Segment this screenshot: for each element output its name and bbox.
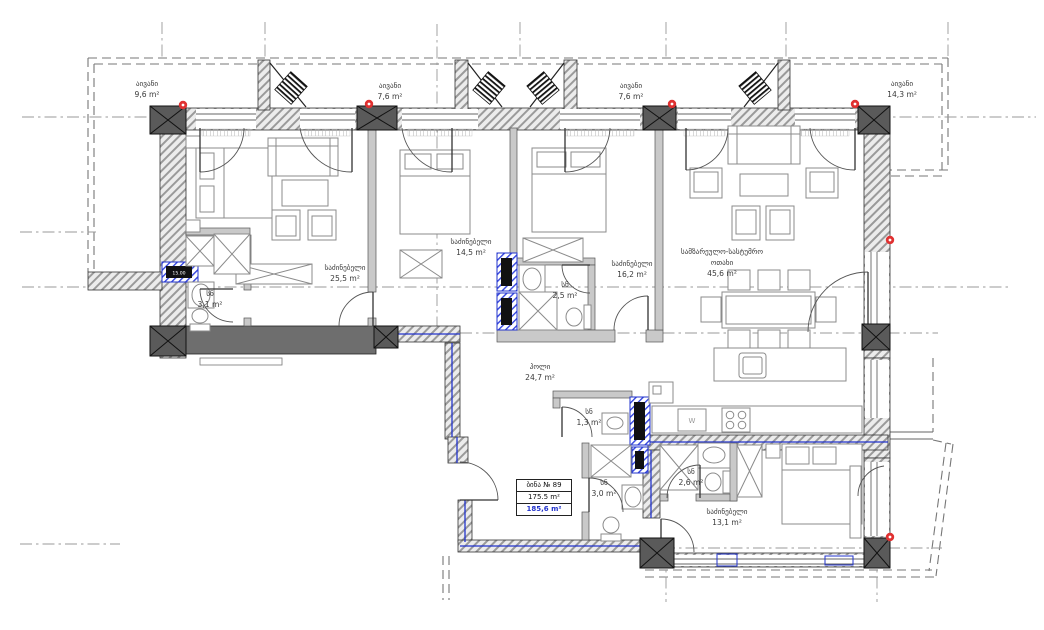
sink-bottom-right: [698, 443, 730, 468]
apartment-area-total: 185,6 m²: [517, 504, 571, 515]
room-label-bedroom-mid-right: საძინებელი16,2 m²: [611, 258, 652, 281]
room-label-bathroom-bottom: სნ3,0 m²: [592, 477, 617, 500]
armchair-3: [732, 206, 760, 240]
shower-mid: [519, 292, 557, 330]
apartment-area-living: 175.5 m²: [517, 492, 571, 504]
bed-mid-left: [400, 150, 470, 234]
room-label-bedroom-bottom: საძინებელი13,1 m²: [706, 506, 747, 529]
room-label-balcony-top-right: აივანი14,3 m²: [887, 78, 917, 101]
apartment-number: ბინა № 89: [517, 480, 571, 492]
armchair-1: [690, 168, 722, 198]
cabinet-bottom: [850, 466, 861, 538]
wardrobe-bottom: [737, 445, 762, 497]
apartment-info-box: ბინა № 89 175.5 m² 185,6 m²: [516, 479, 572, 516]
sink-bottom: [622, 485, 643, 509]
sofa-living: [728, 126, 800, 164]
wardrobe-mid-left: [400, 250, 442, 278]
bed-left: [186, 136, 272, 232]
coffee-table: [740, 174, 788, 196]
stove: [722, 408, 750, 432]
room-label-bathroom-bottom-right: სნ2,6 m²: [679, 466, 704, 489]
bed-bottom: [766, 444, 862, 524]
armchair-4: [766, 206, 794, 240]
armchair-2: [806, 168, 838, 198]
fridge: [649, 382, 673, 403]
toilet-bottom: [601, 517, 621, 541]
wardrobe-mid-right: [523, 238, 583, 262]
room-label-bathroom-left: სნ3,1 m²: [198, 288, 223, 311]
room-label-bedroom-mid-left: საძინებელი14,5 m²: [450, 236, 491, 259]
room-label-hall: ჰოლი24,7 m²: [525, 361, 555, 384]
sofa-set-left: [268, 138, 338, 240]
shower-bottom: [591, 445, 631, 477]
room-label-balcony-mid-left: აივანი7,6 m²: [378, 80, 403, 103]
room-label-balcony-mid-right: აივანი7,6 m²: [619, 80, 644, 103]
shaft-size-label: 15.00: [172, 271, 185, 277]
balcony-door-leaves: [270, 63, 778, 107]
room-label-kitchen-living: სამზარეულო-სასტუმრო ოთახი 45,6 m²: [681, 246, 763, 280]
toilet-bottom-right: [705, 471, 730, 493]
room-label-bathroom-mid: სნ2,5 m²: [553, 279, 578, 302]
room-label-wc-small: სნ1,3 m²: [577, 406, 602, 429]
floor-plan-page: 15.00: [0, 0, 1044, 630]
kitchen-island: [714, 348, 846, 381]
toilet-mid: [566, 305, 591, 329]
toilet-left: [190, 309, 210, 331]
terrace-railing: [888, 432, 933, 439]
washer-crossed: [186, 236, 214, 266]
sink-mid: [519, 265, 545, 292]
shower-left: [214, 234, 250, 274]
room-label-balcony-top-left: აივანი9,6 m²: [135, 78, 160, 101]
room-label-bedroom-left: საძინებელი25,5 m²: [324, 262, 365, 285]
dining-table: [722, 292, 815, 328]
washer-label: W: [689, 417, 696, 425]
sink-wc: [602, 413, 628, 434]
